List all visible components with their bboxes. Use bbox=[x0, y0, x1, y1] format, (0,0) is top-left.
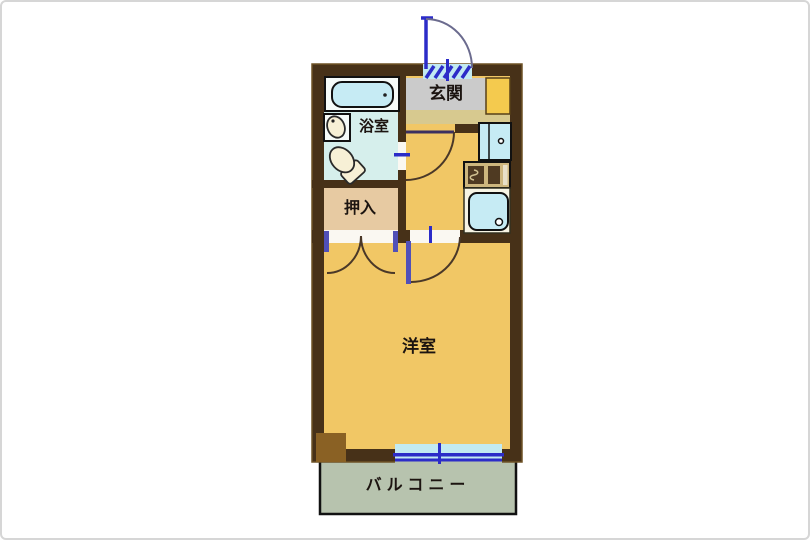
washing-machine bbox=[479, 123, 511, 160]
stove-burner-right bbox=[488, 166, 500, 184]
closet-door-post-right bbox=[393, 231, 398, 252]
window-sill bbox=[395, 444, 502, 454]
shoe-cabinet bbox=[486, 78, 510, 114]
balcony-label: バルコニー bbox=[343, 477, 493, 493]
window-rail-outer bbox=[393, 453, 504, 457]
bathroom-label: 浴室 bbox=[349, 119, 399, 134]
washing-machine-knob bbox=[499, 139, 504, 144]
wall-bathroom-bottom bbox=[312, 180, 406, 188]
corner-pillar bbox=[316, 433, 346, 462]
balcony-sliding-window bbox=[393, 443, 504, 465]
room-door-panel bbox=[406, 241, 411, 284]
western-room-label: 洋室 bbox=[383, 339, 455, 356]
wall-stub-left bbox=[312, 230, 324, 243]
room-door-opening bbox=[410, 230, 460, 243]
closet-door-post-left bbox=[324, 231, 329, 252]
bathtub-drain bbox=[383, 93, 387, 97]
washbasin-faucet bbox=[331, 119, 334, 122]
gas-stove bbox=[464, 162, 510, 188]
stove-side-panel bbox=[503, 165, 508, 185]
floor-plan: 玄関 浴室 押入 洋室 バルコニー bbox=[0, 0, 810, 540]
wall-stub-genkan bbox=[455, 124, 479, 133]
sink-drain bbox=[496, 219, 503, 226]
entrance-door-panel bbox=[421, 18, 433, 69]
kitchen-sink bbox=[464, 188, 510, 233]
entrance-door-mark bbox=[446, 59, 449, 81]
floor-plan-drawing bbox=[2, 2, 810, 540]
bathroom-door-mark bbox=[394, 153, 410, 157]
room-door-mark bbox=[429, 226, 432, 243]
window-balcony-patch bbox=[395, 462, 502, 465]
wall-closet-right bbox=[398, 188, 406, 230]
window-rail-gap bbox=[395, 457, 502, 459]
window-center-mark bbox=[438, 443, 441, 464]
window-rail-inner bbox=[395, 459, 502, 462]
entrance-label: 玄関 bbox=[411, 86, 481, 103]
closet-label: 押入 bbox=[330, 200, 390, 216]
